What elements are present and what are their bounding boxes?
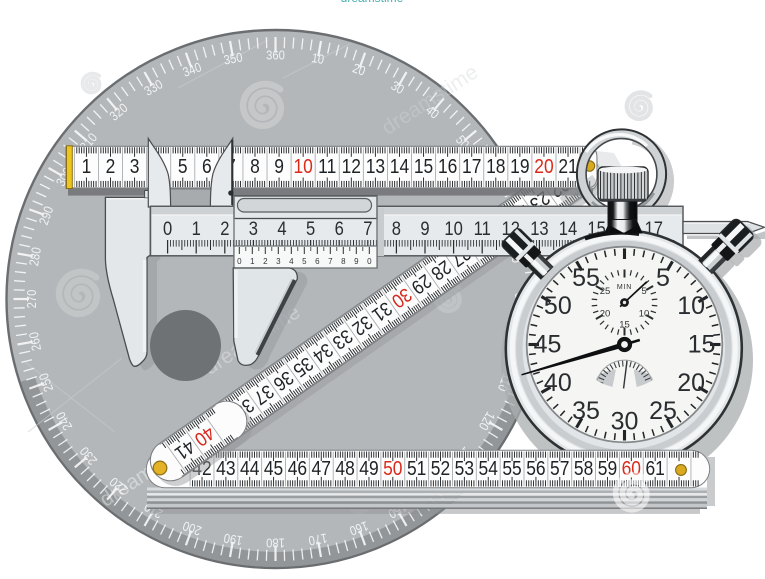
svg-text:15: 15 [619,320,630,331]
svg-text:50: 50 [544,292,572,320]
svg-text:11: 11 [474,218,491,240]
svg-text:9: 9 [274,156,284,179]
svg-text:7: 7 [363,218,372,240]
svg-text:13: 13 [366,156,385,179]
svg-text:15: 15 [414,156,433,179]
svg-text:9: 9 [420,218,429,240]
svg-text:19: 19 [510,156,529,179]
svg-text:17: 17 [462,156,481,179]
svg-text:5: 5 [656,264,670,292]
svg-text:3: 3 [130,156,140,179]
svg-text:46: 46 [288,458,307,481]
svg-text:0: 0 [237,257,242,266]
svg-text:18: 18 [486,156,505,179]
svg-text:49: 49 [359,458,378,481]
svg-text:16: 16 [438,156,457,179]
svg-text:14: 14 [390,156,410,179]
svg-text:30: 30 [611,408,639,436]
svg-text:5: 5 [178,156,188,179]
svg-text:13: 13 [530,218,548,240]
svg-text:57: 57 [550,458,569,481]
svg-text:45: 45 [264,458,283,481]
svg-text:5: 5 [302,257,307,266]
svg-text:9: 9 [354,257,359,266]
svg-text:54: 54 [479,458,499,481]
svg-text:55: 55 [502,458,521,481]
svg-text:8: 8 [392,218,401,240]
svg-text:59: 59 [598,458,617,481]
svg-text:5: 5 [306,218,315,240]
svg-text:12: 12 [342,156,361,179]
svg-text:2: 2 [263,257,268,266]
svg-text:3: 3 [276,257,281,266]
svg-text:20: 20 [534,156,553,179]
svg-text:190: 190 [222,530,243,548]
svg-text:53: 53 [455,458,474,481]
svg-text:5: 5 [641,286,646,297]
svg-text:0: 0 [367,257,372,266]
svg-text:11: 11 [318,156,336,179]
svg-text:6: 6 [202,156,212,179]
svg-text:MIN: MIN [617,284,632,291]
svg-text:51: 51 [407,458,426,481]
svg-text:8: 8 [341,257,346,266]
svg-text:180: 180 [266,535,285,550]
svg-text:45: 45 [534,331,562,359]
svg-text:10: 10 [639,308,650,319]
svg-text:50: 50 [383,458,402,481]
svg-text:25: 25 [600,286,611,297]
svg-text:47: 47 [312,458,331,481]
svg-text:280: 280 [26,246,44,267]
svg-text:8: 8 [250,156,260,179]
svg-text:58: 58 [574,458,593,481]
svg-text:170: 170 [307,530,328,548]
svg-text:3: 3 [249,218,258,240]
svg-text:21: 21 [558,156,577,179]
svg-text:360: 360 [266,47,285,62]
svg-text:48: 48 [335,458,354,481]
svg-text:10: 10 [293,156,312,179]
svg-text:4: 4 [277,218,286,240]
svg-text:4: 4 [289,257,294,266]
svg-text:52: 52 [431,458,450,481]
svg-text:15: 15 [688,331,716,359]
svg-text:2: 2 [106,156,116,179]
svg-text:20: 20 [600,308,611,319]
svg-text:25: 25 [649,397,677,425]
svg-text:1: 1 [250,257,255,266]
svg-text:35: 35 [572,397,600,425]
svg-text:7: 7 [328,257,333,266]
svg-text:dreamstime: dreamstime [341,0,404,5]
svg-text:55: 55 [572,264,600,292]
svg-text:44: 44 [240,458,260,481]
svg-text:1: 1 [82,156,92,179]
svg-text:350: 350 [223,50,244,68]
svg-text:2: 2 [220,218,229,240]
svg-text:10: 10 [444,218,462,240]
svg-text:20: 20 [677,369,705,397]
svg-text:10: 10 [677,292,705,320]
svg-text:1: 1 [192,218,201,240]
svg-text:43: 43 [216,458,235,481]
svg-text:270: 270 [24,289,39,308]
svg-text:61: 61 [645,458,664,481]
svg-text:40: 40 [544,369,572,397]
svg-text:6: 6 [335,218,344,240]
svg-text:14: 14 [559,218,577,240]
svg-text:260: 260 [26,331,44,352]
svg-text:0: 0 [163,218,172,240]
svg-text:56: 56 [526,458,545,481]
svg-text:6: 6 [315,257,320,266]
